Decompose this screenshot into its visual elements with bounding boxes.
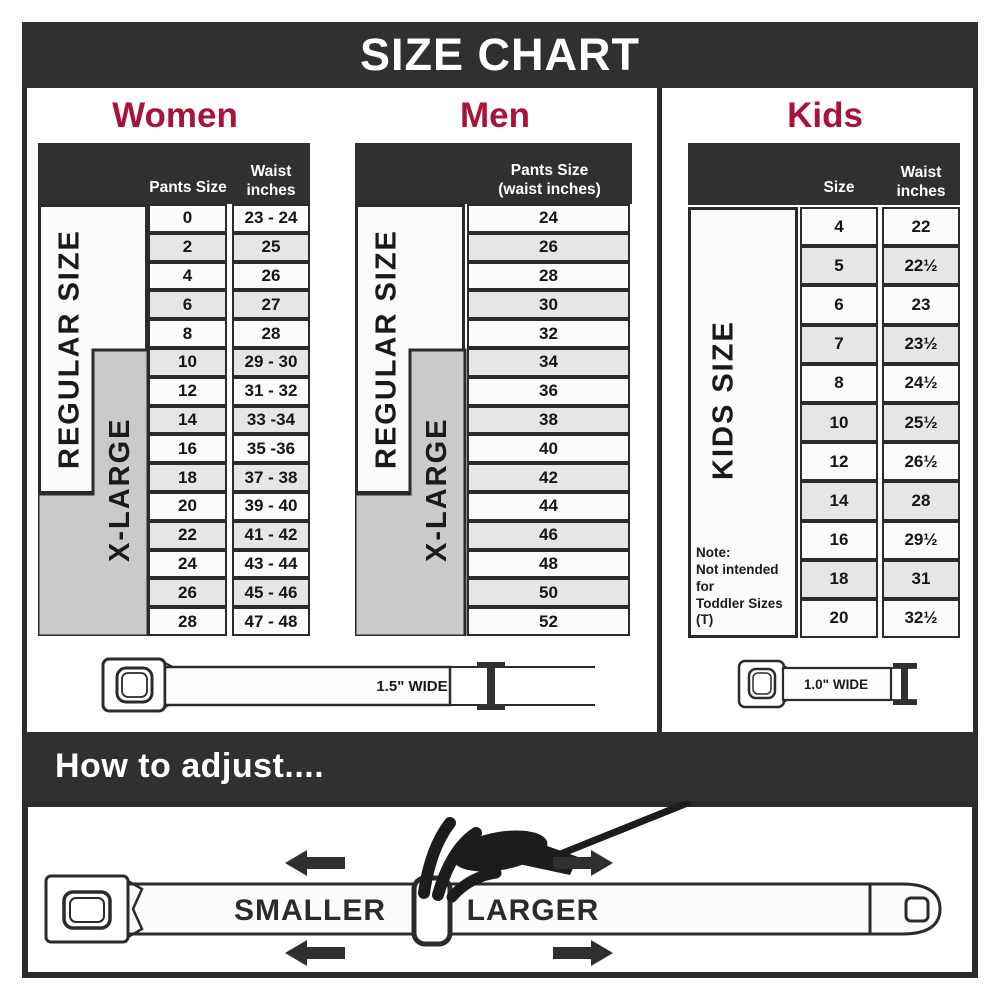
pants-size-cell: 52: [467, 607, 630, 636]
page-title: SIZE CHART: [360, 29, 640, 81]
table-row: 30: [467, 290, 630, 319]
waist-cell: 24½: [882, 364, 960, 403]
adult-belt-icon: [95, 655, 615, 715]
title-bar: SIZE CHART: [22, 22, 978, 88]
table-row: 5 22½: [800, 246, 960, 285]
table-row: 8 28: [148, 319, 310, 348]
pants-size-cell: 18: [148, 463, 227, 492]
adjust-band: How to adjust....: [22, 732, 978, 801]
pants-size-cell: 16: [148, 434, 227, 463]
men-table-header: Pants Size (waist inches): [355, 143, 632, 204]
pants-size-cell: 42: [467, 463, 630, 492]
size-cell: 12: [800, 442, 878, 481]
table-row: 10 25½: [800, 403, 960, 442]
waist-cell: 28: [232, 319, 310, 348]
adjust-band-title: How to adjust....: [55, 747, 324, 786]
waist-cell: 22½: [882, 246, 960, 285]
table-row: 34: [467, 348, 630, 377]
pants-size-cell: 28: [467, 262, 630, 291]
waist-cell: 35 -36: [232, 434, 310, 463]
table-row: 20 32½: [800, 599, 960, 638]
waist-cell: 25: [232, 233, 310, 262]
kids-table-header: Size Waist inches: [688, 143, 960, 205]
table-row: 14 33 -34: [148, 406, 310, 435]
size-cell: 10: [800, 403, 878, 442]
pants-size-cell: 10: [148, 348, 227, 377]
pants-size-cell: 26: [148, 578, 227, 607]
table-row: 16 35 -36: [148, 434, 310, 463]
size-cell: 7: [800, 325, 878, 364]
table-row: 4 26: [148, 262, 310, 291]
table-row: 18 31: [800, 560, 960, 599]
pulled-strap-line: [548, 802, 690, 859]
men-col-pants-size: Pants Size (waist inches): [467, 162, 632, 199]
pants-size-cell: 4: [148, 262, 227, 291]
adult-belt-width-label: 1.5" WIDE: [364, 667, 460, 705]
pants-size-cell: 14: [148, 406, 227, 435]
waist-cell: 26½: [882, 442, 960, 481]
size-cell: 20: [800, 599, 878, 638]
table-row: 16 29½: [800, 521, 960, 560]
smaller-label: SMALLER: [240, 893, 380, 929]
waist-cell: 23: [882, 285, 960, 324]
table-row: 52: [467, 607, 630, 636]
kids-belt-width-label: 1.0" WIDE: [790, 668, 882, 700]
table-row: 28: [467, 262, 630, 291]
table-row: 20 39 - 40: [148, 492, 310, 521]
kids-size-label: KIDS SIZE: [701, 220, 747, 580]
table-row: 36: [467, 377, 630, 406]
pants-size-cell: 38: [467, 406, 630, 435]
kids-table-rows: 4 22 5 22½ 6 23 7 23½ 8 24½: [800, 207, 960, 638]
size-chart-infographic: SIZE CHART Women Men Kids Pants Size Wai…: [0, 0, 1000, 1000]
pants-size-cell: 0: [148, 204, 227, 233]
pants-size-cell: 28: [148, 607, 227, 636]
table-row: 50: [467, 578, 630, 607]
table-row: 10 29 - 30: [148, 348, 310, 377]
size-cell: 16: [800, 521, 878, 560]
size-cell: 18: [800, 560, 878, 599]
pants-size-cell: 24: [148, 550, 227, 579]
size-cell: 14: [800, 481, 878, 520]
pants-size-cell: 44: [467, 492, 630, 521]
table-row: 6 23: [800, 285, 960, 324]
pants-size-cell: 50: [467, 578, 630, 607]
size-cell: 4: [800, 207, 878, 246]
kids-note: Note: Not intended for Toddler Sizes (T): [696, 545, 798, 629]
pants-size-cell: 48: [467, 550, 630, 579]
table-row: 38: [467, 406, 630, 435]
belt-tip: [870, 884, 940, 934]
table-row: 12 26½: [800, 442, 960, 481]
men-table-rows: 24 26 28 30 32 34 36: [467, 204, 630, 636]
table-row: 48: [467, 550, 630, 579]
waist-cell: 43 - 44: [232, 550, 310, 579]
pants-size-cell: 34: [467, 348, 630, 377]
table-row: 32: [467, 319, 630, 348]
table-row: 26 45 - 46: [148, 578, 310, 607]
waist-cell: 31 - 32: [232, 377, 310, 406]
pants-size-cell: 8: [148, 319, 227, 348]
waist-cell: 23½: [882, 325, 960, 364]
pants-size-cell: 26: [467, 233, 630, 262]
table-row: 42: [467, 463, 630, 492]
table-row: 2 25: [148, 233, 310, 262]
table-row: 18 37 - 38: [148, 463, 310, 492]
table-row: 14 28: [800, 481, 960, 520]
pants-size-cell: 32: [467, 319, 630, 348]
kids-size-box: KIDS SIZE Note: Not intended for Toddler…: [688, 207, 798, 638]
table-row: 24: [467, 204, 630, 233]
waist-cell: 26: [232, 262, 310, 291]
table-row: 24 43 - 44: [148, 550, 310, 579]
size-cell: 6: [800, 285, 878, 324]
panel-divider: [657, 88, 662, 732]
larger-label: LARGER: [463, 893, 603, 929]
adjust-belt-illustration: [22, 801, 978, 978]
waist-cell: 47 - 48: [232, 607, 310, 636]
table-row: 28 47 - 48: [148, 607, 310, 636]
waist-cell: 27: [232, 290, 310, 319]
pants-size-cell: 22: [148, 521, 227, 550]
waist-cell: 45 - 46: [232, 578, 310, 607]
waist-cell: 33 -34: [232, 406, 310, 435]
size-cell: 8: [800, 364, 878, 403]
waist-cell: 37 - 38: [232, 463, 310, 492]
kids-col-waist: Waist inches: [882, 164, 960, 201]
pants-size-cell: 46: [467, 521, 630, 550]
women-table-header: Pants Size Waist inches: [38, 143, 310, 204]
women-xlarge-label: X-LARGE: [93, 370, 148, 610]
table-row: 7 23½: [800, 325, 960, 364]
table-row: 4 22: [800, 207, 960, 246]
men-xlarge-label: X-LARGE: [410, 370, 465, 610]
kids-section-title: Kids: [710, 94, 940, 138]
pants-size-cell: 36: [467, 377, 630, 406]
waist-cell: 29 - 30: [232, 348, 310, 377]
buckle-icon: [46, 876, 142, 942]
waist-cell: 41 - 42: [232, 521, 310, 550]
table-row: 40: [467, 434, 630, 463]
waist-cell: 29½: [882, 521, 960, 560]
table-row: 26: [467, 233, 630, 262]
waist-cell: 31: [882, 560, 960, 599]
table-row: 12 31 - 32: [148, 377, 310, 406]
pants-size-cell: 2: [148, 233, 227, 262]
waist-cell: 22: [882, 207, 960, 246]
pants-size-cell: 12: [148, 377, 227, 406]
table-row: 6 27: [148, 290, 310, 319]
women-section-title: Women: [60, 94, 290, 138]
pants-size-cell: 6: [148, 290, 227, 319]
waist-cell: 28: [882, 481, 960, 520]
table-row: 0 23 - 24: [148, 204, 310, 233]
table-row: 46: [467, 521, 630, 550]
pants-size-cell: 40: [467, 434, 630, 463]
waist-cell: 25½: [882, 403, 960, 442]
pants-size-cell: 30: [467, 290, 630, 319]
waist-cell: 23 - 24: [232, 204, 310, 233]
size-cell: 5: [800, 246, 878, 285]
waist-cell: 39 - 40: [232, 492, 310, 521]
women-col-waist: Waist inches: [232, 163, 310, 200]
pants-size-cell: 20: [148, 492, 227, 521]
women-col-pants-size: Pants Size: [148, 179, 228, 197]
women-table-rows: 0 23 - 24 2 25 4 26 6 27 8 28: [148, 204, 310, 636]
table-row: 44: [467, 492, 630, 521]
kids-col-size: Size: [800, 179, 878, 197]
pants-size-cell: 24: [467, 204, 630, 233]
men-section-title: Men: [380, 94, 610, 138]
waist-cell: 32½: [882, 599, 960, 638]
table-row: 22 41 - 42: [148, 521, 310, 550]
table-row: 8 24½: [800, 364, 960, 403]
